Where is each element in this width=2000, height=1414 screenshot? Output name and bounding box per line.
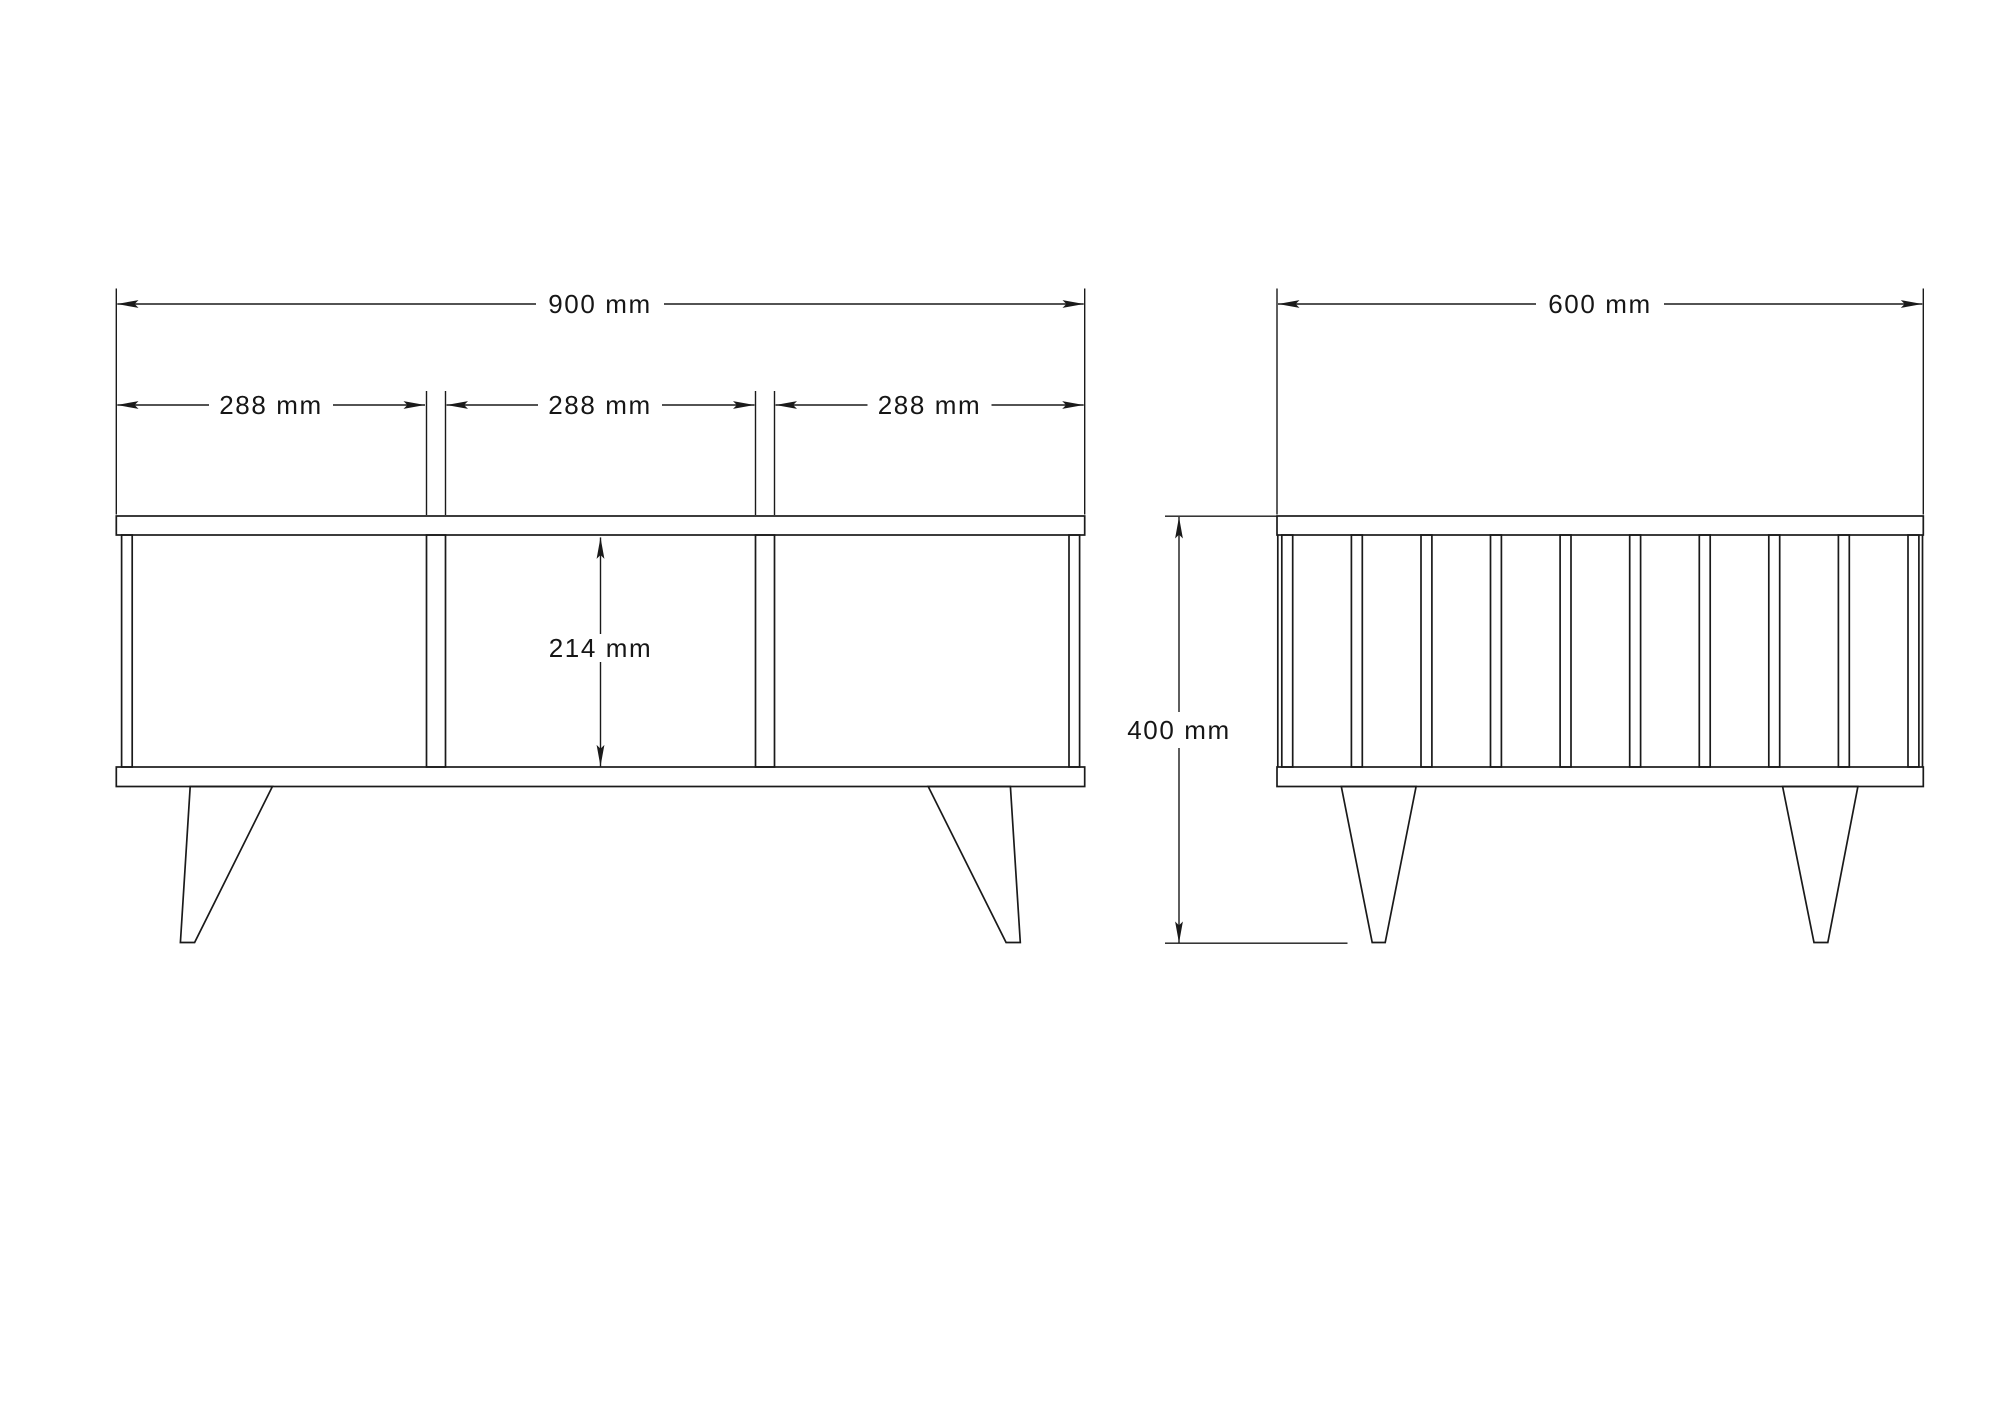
svg-text:900 mm: 900 mm <box>548 289 652 319</box>
svg-text:288 mm: 288 mm <box>219 390 323 420</box>
svg-text:288 mm: 288 mm <box>878 390 982 420</box>
svg-text:288 mm: 288 mm <box>548 390 652 420</box>
svg-text:214 mm: 214 mm <box>549 633 653 663</box>
svg-text:600 mm: 600 mm <box>1548 289 1652 319</box>
svg-text:400 mm: 400 mm <box>1127 715 1231 745</box>
